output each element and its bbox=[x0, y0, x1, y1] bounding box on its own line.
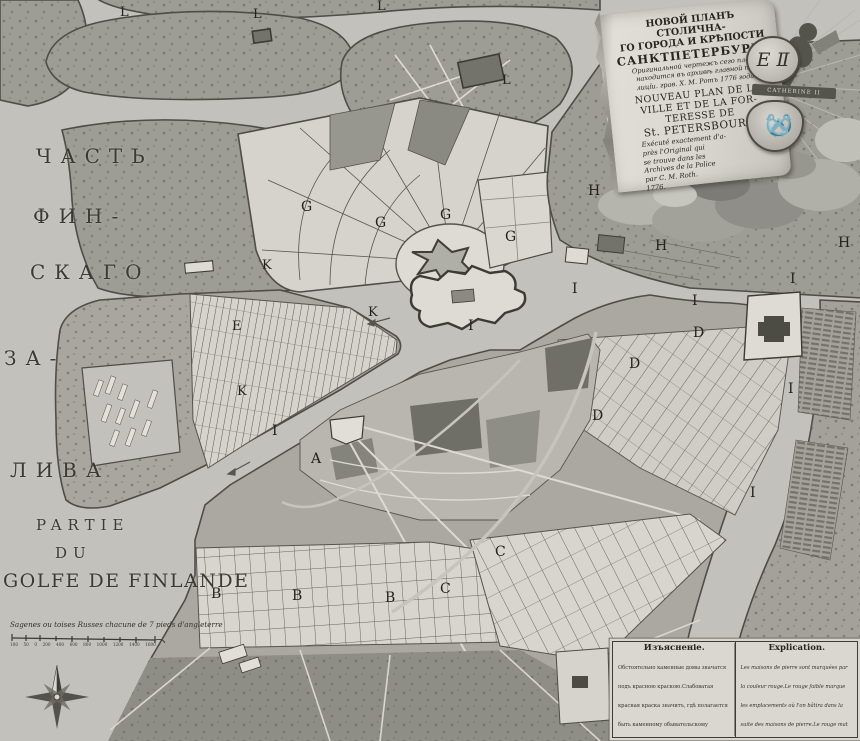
district-letter-K: K bbox=[262, 258, 272, 273]
district-letter-K: K bbox=[237, 384, 247, 399]
scale-bar-ticks: 1005002004006008001000120014001600 bbox=[10, 642, 156, 647]
sea-label-liva: ЛИВА bbox=[10, 458, 110, 482]
scale-bar-label: Sagenes ou toises Russes chacune de 7 pi… bbox=[10, 620, 223, 629]
nevsky-monastery bbox=[744, 292, 802, 360]
anchor-icon: ⚓ bbox=[759, 104, 800, 145]
sea-label-za: ЗА- bbox=[4, 346, 65, 370]
district-letter-L: L bbox=[502, 73, 511, 88]
district-letter-D: D bbox=[592, 408, 603, 424]
imperial-monogram-medallion: E Ⅱ bbox=[746, 36, 800, 84]
district-letter-L: L bbox=[120, 5, 129, 20]
district-letter-A: A bbox=[310, 451, 322, 467]
district-letter-C: C bbox=[440, 581, 451, 597]
admiralty bbox=[330, 416, 364, 444]
district-letter-G: G bbox=[505, 229, 516, 245]
sea-label-partie: PARTIE bbox=[36, 516, 129, 534]
district-letter-B: B bbox=[385, 590, 395, 606]
district-letter-E: E bbox=[232, 319, 242, 334]
district-letter-D: D bbox=[693, 325, 704, 341]
district-letter-K: K bbox=[368, 305, 378, 320]
legend-russian-column: Изъясненіе. Обстоятельно каменные домы з… bbox=[613, 642, 735, 737]
district-letter-D: D bbox=[629, 356, 640, 372]
district-letter-H: H bbox=[588, 183, 600, 199]
legend-box: Изъясненіе. Обстоятельно каменные домы з… bbox=[612, 641, 858, 738]
district-letter-I: I bbox=[272, 423, 278, 439]
district-letter-I: I bbox=[572, 281, 578, 297]
district-letter-G: G bbox=[301, 199, 312, 215]
sea-label-fin: ФИН- bbox=[33, 204, 127, 228]
district-letter-I: I bbox=[790, 271, 796, 287]
legend-russian-header: Изъясненіе. bbox=[618, 644, 731, 653]
district-letter-H: H bbox=[838, 235, 850, 251]
district-letter-L: L bbox=[253, 7, 262, 22]
tsar-garden bbox=[478, 172, 552, 268]
legend-russian-text: Обстоятельно каменные домы значатся подъ… bbox=[618, 654, 731, 737]
district-letter-G: G bbox=[440, 207, 451, 223]
district-letter-L: L bbox=[377, 0, 386, 14]
legend-french-column: Explication. Les maisons de pierre sont … bbox=[735, 642, 858, 737]
sea-label-skago: СКАГО bbox=[30, 260, 151, 284]
district-letter-I: I bbox=[750, 485, 756, 501]
district-letter-I: I bbox=[692, 293, 698, 309]
legend-french-header: Explication. bbox=[741, 644, 854, 653]
district-letter-B: B bbox=[292, 588, 302, 604]
district-letter-I: I bbox=[788, 381, 794, 397]
district-letter-G: G bbox=[375, 215, 386, 231]
district-letter-H: H bbox=[655, 238, 667, 254]
title-cartouche: НОВОЙ ПЛАНЪ СТОЛИЧНА-ГО ГОРОДА И КРѢПОСТ… bbox=[596, 0, 792, 193]
legend-french-text: Les maisons de pierre sont marquées par … bbox=[741, 654, 854, 737]
sea-label-chast: ЧАСТЬ bbox=[36, 144, 154, 168]
district-letter-I: I bbox=[468, 318, 474, 334]
fortress-cathedral bbox=[452, 289, 475, 303]
district-letter-C: C bbox=[495, 544, 506, 560]
map-canvas: LLLLGGGGKKKEHHHIIIIIIIABBBCCDDD ЧАСТЬ ФИ… bbox=[0, 0, 860, 741]
sea-label-golfe: GOLFE DE FINLANDE bbox=[3, 570, 250, 592]
sea-label-du: DU bbox=[55, 544, 92, 562]
